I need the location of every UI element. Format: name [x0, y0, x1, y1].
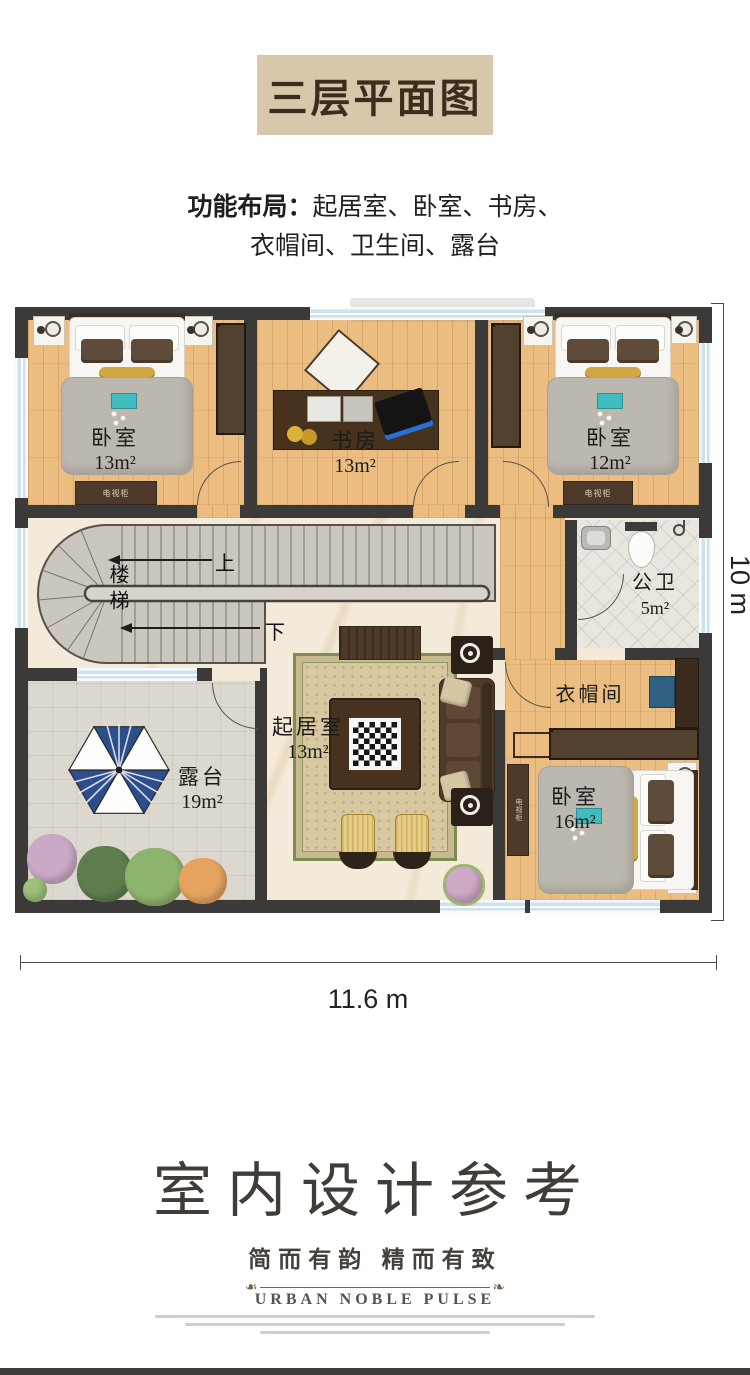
- toilet-tank: [625, 522, 657, 531]
- tray: [111, 393, 137, 409]
- room-area: 5m²: [610, 596, 700, 621]
- function-layout-rooms1: 起居室、卧室、书房、: [313, 193, 563, 221]
- armchair: [393, 814, 431, 870]
- page: 三层平面图 功能布局：起居室、卧室、书房、 衣帽间、卫生间、露台: [0, 0, 750, 1375]
- room-name: 起居室: [253, 714, 363, 740]
- window: [310, 307, 545, 320]
- wall: [555, 648, 577, 660]
- wall: [15, 900, 440, 913]
- cabinet: [675, 658, 699, 728]
- wardrobe: [549, 728, 699, 760]
- tv-cabinet-label: 电视柜: [103, 488, 130, 499]
- pillow: [81, 339, 123, 363]
- up-label: 上: [215, 547, 235, 576]
- room-area: 13m²: [300, 454, 410, 479]
- corridor-floor: [500, 518, 565, 660]
- window: [77, 668, 197, 681]
- bush: [125, 848, 185, 906]
- chair-back: [339, 852, 377, 869]
- divider-line: [260, 1287, 491, 1288]
- lamp-dot: [468, 803, 473, 808]
- window: [15, 528, 28, 628]
- side-table: [451, 788, 493, 826]
- room-name: 书房: [300, 428, 410, 454]
- wall: [15, 307, 28, 358]
- window: [15, 358, 28, 498]
- function-layout: 功能布局：起居室、卧室、书房、 衣帽间、卫生间、露台: [0, 188, 750, 266]
- room-label-living: 起居室 13m²: [253, 714, 363, 765]
- flower-bush: [443, 864, 485, 906]
- room-area: 19m²: [147, 790, 257, 815]
- nightstand: [523, 316, 553, 346]
- room-label-bedroom-tr: 卧室 12m²: [555, 425, 665, 476]
- fine-print-line: [185, 1323, 565, 1326]
- pillow: [131, 339, 173, 363]
- room-label-study: 书房 13m²: [300, 428, 410, 479]
- dim-tick: [20, 955, 21, 970]
- stairs: [27, 523, 497, 665]
- lamp-dot: [468, 651, 473, 656]
- flower-bush: [27, 834, 77, 884]
- tv-cabinet: 电视柜: [563, 481, 633, 505]
- wall: [465, 505, 500, 518]
- room-name: 衣帽间: [535, 682, 645, 708]
- bush: [179, 858, 227, 904]
- function-layout-line2: 衣帽间、卫生间、露台: [0, 227, 750, 266]
- pillow: [617, 339, 659, 363]
- wall: [565, 520, 577, 648]
- room-label-bedroom-br: 卧室 16m²: [520, 784, 630, 835]
- function-layout-prefix: 功能布局：: [187, 193, 312, 221]
- sofa-cushion: [446, 723, 480, 757]
- book: [307, 396, 341, 422]
- room-label-bath: 公卫 5m²: [610, 570, 700, 621]
- wall: [28, 505, 197, 518]
- tray: [597, 393, 623, 409]
- footer-heading: 室内设计参考: [0, 1143, 750, 1228]
- pillow: [567, 339, 609, 363]
- dresser: [649, 676, 675, 708]
- bush: [23, 878, 47, 902]
- room-label-bedroom-tl: 卧室 13m²: [60, 425, 170, 476]
- fine-print-line: [155, 1315, 595, 1318]
- room-area: 13m²: [60, 451, 170, 476]
- wall: [699, 307, 712, 343]
- sofa: [439, 678, 495, 802]
- room-area: 16m²: [520, 810, 630, 835]
- wardrobe: [491, 323, 521, 448]
- pillow: [648, 834, 674, 878]
- nightstand: [33, 316, 65, 346]
- chair-seat: [395, 814, 429, 856]
- page-title: 三层平面图: [257, 55, 493, 135]
- page-title-text: 三层平面图: [268, 66, 483, 124]
- bottom-edge-bar: [0, 1368, 750, 1375]
- nightstand: [671, 316, 697, 344]
- up-arrow-head: [108, 555, 120, 565]
- stairs-label: 楼梯: [103, 564, 132, 616]
- bench: [339, 626, 421, 660]
- sink-basin: [587, 531, 605, 545]
- dim-tick: [716, 955, 717, 970]
- room-area: 12m²: [555, 451, 665, 476]
- wall: [493, 648, 505, 660]
- armchair: [339, 814, 377, 870]
- threshold-tl: [197, 505, 240, 518]
- up-arrow-line: [120, 559, 212, 561]
- wall: [260, 668, 267, 681]
- chair-back: [393, 852, 431, 869]
- down-arrow-head: [120, 623, 132, 633]
- sofa-back: [482, 683, 492, 796]
- chair-seat: [341, 814, 375, 856]
- open-shelf: [513, 732, 551, 758]
- shower-arm: [683, 520, 685, 530]
- dim-tick: [711, 920, 724, 921]
- side-table: [451, 636, 493, 674]
- room-name: 卧室: [520, 784, 630, 810]
- wall: [15, 498, 28, 528]
- footer-tagline: 简而有韵 精而有致: [0, 1240, 750, 1274]
- wall: [660, 900, 712, 913]
- nightstand: [183, 316, 213, 346]
- room-name: 公卫: [610, 570, 700, 596]
- tv-cabinet: 电视柜: [75, 481, 157, 505]
- wall: [699, 633, 712, 900]
- window: [699, 538, 712, 633]
- tv-cabinet-label: 电视柜: [585, 488, 612, 499]
- wall: [197, 668, 212, 681]
- dim-height-label: 10 m: [724, 555, 750, 675]
- room-label-terrace: 露台 19m²: [147, 764, 257, 815]
- function-layout-line1: 功能布局：起居室、卧室、书房、: [0, 188, 750, 227]
- wall: [553, 505, 699, 518]
- room-area: 13m²: [253, 740, 363, 765]
- down-label: 下: [265, 616, 285, 645]
- dim-width-label: 11.6 m: [268, 984, 468, 1015]
- wall: [240, 505, 413, 518]
- window: [699, 343, 712, 463]
- pillow: [648, 780, 674, 824]
- dim-tick: [711, 303, 724, 304]
- floor-plan: 楼梯 上 下: [15, 298, 712, 913]
- room-label-cloakroom: 衣帽间: [535, 682, 645, 708]
- room-name: 卧室: [60, 425, 170, 451]
- room-name: 卧室: [555, 425, 665, 451]
- footer-brand: URBAN NOBLE PULSE: [0, 1291, 750, 1309]
- dim-line-width: [20, 962, 717, 963]
- fine-print-line: [260, 1331, 490, 1334]
- book: [343, 396, 373, 422]
- down-arrow-line: [132, 627, 260, 629]
- window: [530, 900, 660, 913]
- room-name: 露台: [147, 764, 257, 790]
- wall: [475, 320, 488, 505]
- wall: [699, 463, 712, 538]
- wall: [15, 668, 77, 681]
- wardrobe: [216, 323, 246, 435]
